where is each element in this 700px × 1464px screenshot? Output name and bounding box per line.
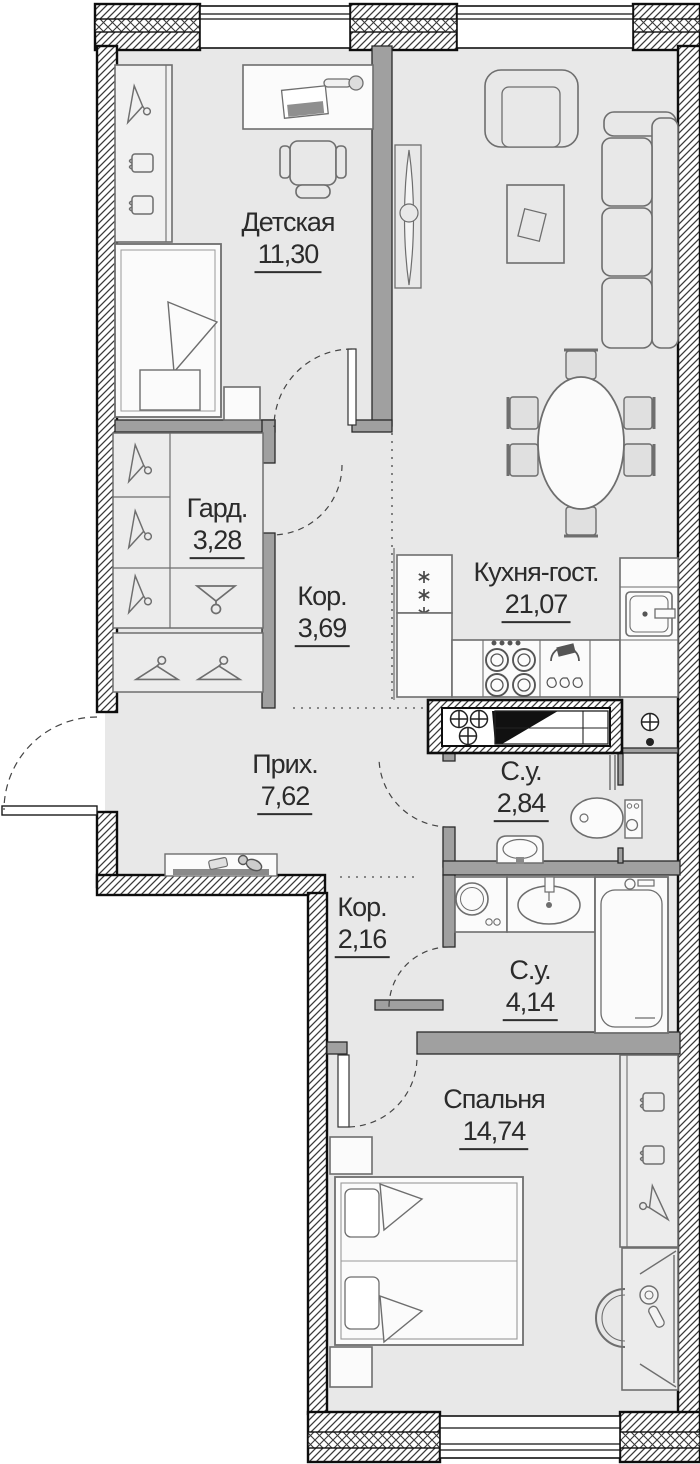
laptop-icon <box>282 86 329 118</box>
kitchen-counter-bottom <box>452 640 620 697</box>
bathtub <box>595 877 668 1033</box>
room-label-children: Детская 11,30 <box>241 207 334 273</box>
room-label-hallway: Прих. 7,62 <box>252 749 318 815</box>
wall-wardrobe-east-bottom <box>262 533 275 708</box>
double-bed <box>335 1177 523 1345</box>
wall-children-south <box>115 420 275 432</box>
room-name: Кор. <box>335 892 390 924</box>
pillow <box>345 1189 379 1237</box>
room-area: 11,30 <box>255 239 322 273</box>
nightstand <box>330 1347 372 1387</box>
room-area: 2,16 <box>335 924 390 958</box>
door-entrance <box>2 717 97 815</box>
room-name: Кор. <box>295 581 350 613</box>
wall-wardrobe-east-top <box>262 420 275 463</box>
kitchen-sink-main <box>620 558 678 697</box>
toilet <box>571 798 642 838</box>
room-label-kitchen-living: Кухня-гост. 21,07 <box>474 557 599 623</box>
bed-single <box>115 244 221 417</box>
nightstand <box>330 1137 372 1174</box>
room-name: Прих. <box>252 749 318 781</box>
desk <box>243 65 373 129</box>
wardrobe-cabinet <box>115 65 172 242</box>
room-label-corridor1: Кор. 3,69 <box>295 581 350 647</box>
pillow <box>345 1277 379 1329</box>
wall-bath1-south <box>443 861 680 875</box>
window-children <box>200 6 350 48</box>
bathroom-sink <box>497 836 543 864</box>
dining-table <box>538 377 624 509</box>
lamp-icon <box>324 79 351 87</box>
room-label-bathroom1: С.у. 2,84 <box>494 756 549 822</box>
room-name: Детская <box>241 207 334 239</box>
room-area: 14,74 <box>460 1116 529 1150</box>
nightstand <box>224 387 260 420</box>
room-label-bedroom: Спальня 14,74 <box>443 1084 545 1150</box>
room-name: С.у. <box>494 756 549 788</box>
wall-bedroom-north <box>417 1032 680 1054</box>
room-name: Гард. <box>187 493 248 525</box>
console-shelf <box>165 854 277 876</box>
coat-closet <box>113 633 263 692</box>
bedroom-wardrobe <box>620 1055 678 1247</box>
sofa <box>602 112 678 348</box>
fridge <box>397 555 452 619</box>
hand-mirror-icon <box>640 1286 658 1304</box>
window-bedroom <box>440 1416 620 1458</box>
room-area: 3,69 <box>295 613 350 647</box>
washing-machine <box>455 877 507 932</box>
vanity-sink <box>507 877 595 932</box>
room-label-wardrobe: Гард. 3,28 <box>187 493 248 559</box>
room-area: 21,07 <box>502 589 571 623</box>
room-name: Спальня <box>443 1084 545 1116</box>
wall-bath2-west <box>443 875 455 947</box>
tv-unit <box>395 145 421 288</box>
window-living <box>457 6 633 48</box>
room-area: 4,14 <box>503 987 558 1021</box>
room-area: 2,84 <box>494 788 549 822</box>
room-name: Кухня-гост. <box>474 557 599 589</box>
room-label-corridor2: Кор. 2,16 <box>335 892 390 958</box>
floorplan-drawing <box>0 0 700 1464</box>
coffee-table <box>507 185 564 263</box>
wall-children-living <box>372 46 392 426</box>
room-name: С.у. <box>503 955 558 987</box>
floorplan-page: Детская 11,30 Гард. 3,28 Кор. 3,69 Кухня… <box>0 0 700 1464</box>
kitchen-counter-left <box>397 613 452 697</box>
room-area: 7,62 <box>258 781 313 815</box>
armchair <box>485 70 578 147</box>
room-label-bathroom2: С.у. 4,14 <box>503 955 558 1021</box>
room-area: 3,28 <box>190 525 245 559</box>
